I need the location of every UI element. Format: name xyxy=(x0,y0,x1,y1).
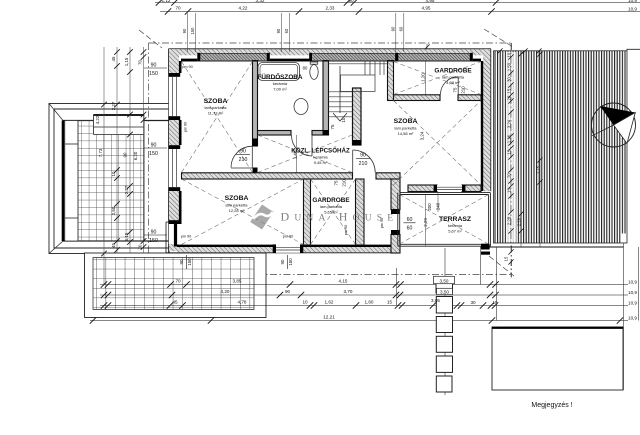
svg-text:lam.parketta: lam.parketta xyxy=(394,126,417,131)
svg-text:2,27: 2,27 xyxy=(111,101,116,110)
svg-text:7,00 m²: 7,00 m² xyxy=(273,87,287,92)
svg-text:70: 70 xyxy=(175,6,181,11)
svg-text:80: 80 xyxy=(303,66,308,71)
svg-text:90: 90 xyxy=(182,28,187,33)
svg-text:2,50: 2,50 xyxy=(111,206,116,215)
svg-text:70: 70 xyxy=(138,60,143,65)
svg-text:4,95: 4,95 xyxy=(426,0,435,3)
svg-text:4,08 m²: 4,08 m² xyxy=(446,80,460,85)
svg-text:3,24: 3,24 xyxy=(506,119,511,128)
svg-text:pm 90: pm 90 xyxy=(181,235,192,239)
svg-text:60: 60 xyxy=(284,28,289,33)
svg-text:5,67 m²: 5,67 m² xyxy=(448,229,462,234)
svg-text:10,9: 10,9 xyxy=(628,280,637,285)
svg-text:1,20: 1,20 xyxy=(421,73,426,82)
svg-text:90: 90 xyxy=(348,0,354,3)
svg-text:4,20: 4,20 xyxy=(221,289,230,294)
svg-text:3,70: 3,70 xyxy=(344,289,353,294)
svg-text:60: 60 xyxy=(407,217,413,223)
svg-text:11,73 m²: 11,73 m² xyxy=(208,111,224,116)
svg-text:kerámia: kerámia xyxy=(273,81,288,86)
svg-text:SZOBA: SZOBA xyxy=(204,98,228,105)
svg-text:20: 20 xyxy=(506,173,511,178)
svg-text:75: 75 xyxy=(334,180,339,185)
svg-text:2,27: 2,27 xyxy=(124,185,129,194)
svg-text:2,28: 2,28 xyxy=(506,216,511,225)
svg-text:90: 90 xyxy=(280,259,285,264)
svg-text:60: 60 xyxy=(407,226,413,232)
svg-text:90: 90 xyxy=(360,153,366,159)
svg-text:15: 15 xyxy=(387,300,393,305)
svg-text:10: 10 xyxy=(111,171,116,176)
svg-text:lam.parketta: lam.parketta xyxy=(442,75,465,80)
svg-text:90: 90 xyxy=(151,230,157,236)
svg-text:lam.parketta: lam.parketta xyxy=(320,204,343,209)
svg-text:TERRASZ: TERRASZ xyxy=(439,216,471,223)
svg-text:45: 45 xyxy=(111,56,116,61)
svg-text:4,22: 4,22 xyxy=(239,6,248,11)
svg-text:3,05: 3,05 xyxy=(431,298,440,303)
svg-text:4,15: 4,15 xyxy=(339,279,348,284)
svg-text:210: 210 xyxy=(239,157,248,163)
svg-text:10: 10 xyxy=(302,300,308,305)
svg-text:14,58 m²: 14,58 m² xyxy=(398,131,414,136)
svg-text:45: 45 xyxy=(111,243,116,248)
svg-text:1,15: 1,15 xyxy=(124,57,129,66)
svg-text:200: 200 xyxy=(427,203,432,211)
svg-text:70: 70 xyxy=(175,279,181,284)
svg-text:210: 210 xyxy=(359,161,368,167)
svg-text:15: 15 xyxy=(504,256,509,261)
svg-text:12,21: 12,21 xyxy=(323,314,335,319)
svg-text:9,45 m²: 9,45 m² xyxy=(314,160,328,165)
svg-text:2,26: 2,26 xyxy=(517,217,522,226)
svg-text:10: 10 xyxy=(341,117,346,122)
svg-text:GARDROBE: GARDROBE xyxy=(434,68,472,75)
svg-text:10: 10 xyxy=(506,52,511,57)
svg-text:pm 90: pm 90 xyxy=(283,235,294,239)
svg-text:3,50: 3,50 xyxy=(440,278,449,283)
svg-text:SZOBA: SZOBA xyxy=(225,195,249,202)
svg-text:SZOBA: SZOBA xyxy=(394,118,418,125)
svg-text:75: 75 xyxy=(453,87,458,92)
svg-text:1,12: 1,12 xyxy=(162,0,171,3)
svg-text:3,24: 3,24 xyxy=(420,131,425,140)
svg-text:150: 150 xyxy=(190,27,195,35)
svg-text:1,62: 1,62 xyxy=(325,300,334,305)
svg-text:30: 30 xyxy=(470,300,476,305)
svg-text:3,32: 3,32 xyxy=(256,0,265,3)
svg-text:150: 150 xyxy=(149,71,158,77)
svg-text:90: 90 xyxy=(151,63,157,69)
svg-text:GARDROBE: GARDROBE xyxy=(312,197,350,204)
svg-text:90: 90 xyxy=(285,289,291,294)
svg-text:KÖZL. LÉPCSŐHÁZ: KÖZL. LÉPCSŐHÁZ xyxy=(291,146,350,154)
svg-text:10,9: 10,9 xyxy=(628,7,637,12)
svg-text:7,75: 7,75 xyxy=(536,165,541,174)
svg-text:90: 90 xyxy=(390,26,395,31)
svg-text:1,50: 1,50 xyxy=(506,62,511,71)
svg-text:90: 90 xyxy=(123,152,128,157)
svg-text:90: 90 xyxy=(276,28,281,33)
svg-text:7,73: 7,73 xyxy=(98,148,103,157)
svg-text:4,78: 4,78 xyxy=(238,300,247,305)
svg-text:10,9: 10,9 xyxy=(628,301,637,306)
svg-text:4,22: 4,22 xyxy=(95,115,100,124)
svg-text:210: 210 xyxy=(342,179,347,187)
svg-text:10,9: 10,9 xyxy=(628,290,637,295)
svg-text:1,15: 1,15 xyxy=(124,232,129,241)
svg-text:75: 75 xyxy=(330,124,335,129)
svg-text:10,9: 10,9 xyxy=(628,316,637,321)
svg-text:FÜRDŐSZOBA: FÜRDŐSZOBA xyxy=(257,72,302,81)
svg-text:150: 150 xyxy=(149,151,158,157)
svg-text:6,20: 6,20 xyxy=(133,151,138,160)
svg-text:150: 150 xyxy=(187,258,192,266)
svg-text:150: 150 xyxy=(288,258,293,266)
svg-text:15: 15 xyxy=(492,300,498,305)
svg-text:pm 90: pm 90 xyxy=(344,225,348,236)
svg-text:kerámia: kerámia xyxy=(313,154,328,159)
svg-text:pm 90: pm 90 xyxy=(184,122,188,133)
svg-text:150: 150 xyxy=(149,238,158,244)
svg-text:3,85: 3,85 xyxy=(233,279,242,284)
svg-text:lam.parketta: lam.parketta xyxy=(204,105,227,110)
svg-text:3,50: 3,50 xyxy=(440,290,449,295)
svg-text:15: 15 xyxy=(506,88,511,93)
svg-text:lam.parketta: lam.parketta xyxy=(225,203,248,208)
svg-text:45: 45 xyxy=(172,300,178,305)
svg-text:210: 210 xyxy=(461,86,466,94)
svg-text:12,28 m²: 12,28 m² xyxy=(229,208,245,213)
svg-text:2,33: 2,33 xyxy=(326,6,335,11)
svg-text:pm 90: pm 90 xyxy=(182,65,193,69)
svg-text:60: 60 xyxy=(398,26,403,31)
svg-text:10,9: 10,9 xyxy=(628,0,637,3)
svg-text:4,95: 4,95 xyxy=(422,6,431,11)
svg-text:90: 90 xyxy=(179,259,184,264)
svg-text:kerámia: kerámia xyxy=(448,223,463,228)
svg-text:70: 70 xyxy=(138,244,143,249)
svg-text:Megjegyzés !: Megjegyzés ! xyxy=(531,402,572,409)
svg-text:1,60: 1,60 xyxy=(365,300,374,305)
svg-text:30: 30 xyxy=(506,77,511,82)
svg-text:90: 90 xyxy=(151,143,157,149)
svg-text:90: 90 xyxy=(240,149,246,155)
